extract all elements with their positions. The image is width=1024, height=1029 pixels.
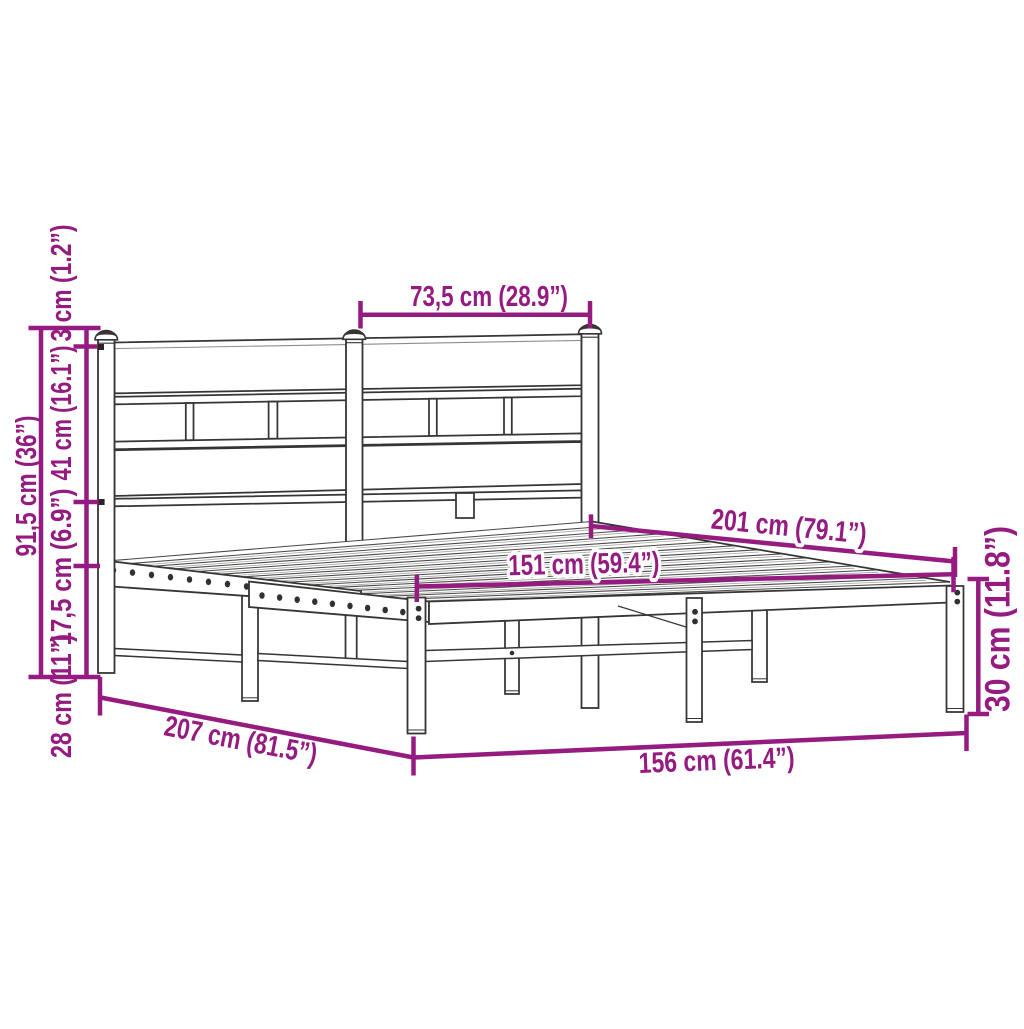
svg-text:28 cm (11”): 28 cm (11”) (46, 634, 78, 758)
svg-text:156 cm (61.4”): 156 cm (61.4”) (638, 742, 795, 780)
svg-text:73,5 cm (28.9”): 73,5 cm (28.9”) (410, 281, 568, 313)
svg-text:151 cm (59.4”): 151 cm (59.4”) (508, 547, 660, 582)
svg-text:30 cm (11.8”): 30 cm (11.8”) (979, 526, 1018, 712)
svg-text:3 cm (1.2”): 3 cm (1.2”) (46, 225, 78, 342)
svg-text:17,5 cm (6.9”): 17,5 cm (6.9”) (46, 489, 78, 646)
svg-text:91,5 cm (36”): 91,5 cm (36”) (11, 416, 43, 557)
svg-text:41 cm (16.1”): 41 cm (16.1”) (46, 346, 78, 481)
